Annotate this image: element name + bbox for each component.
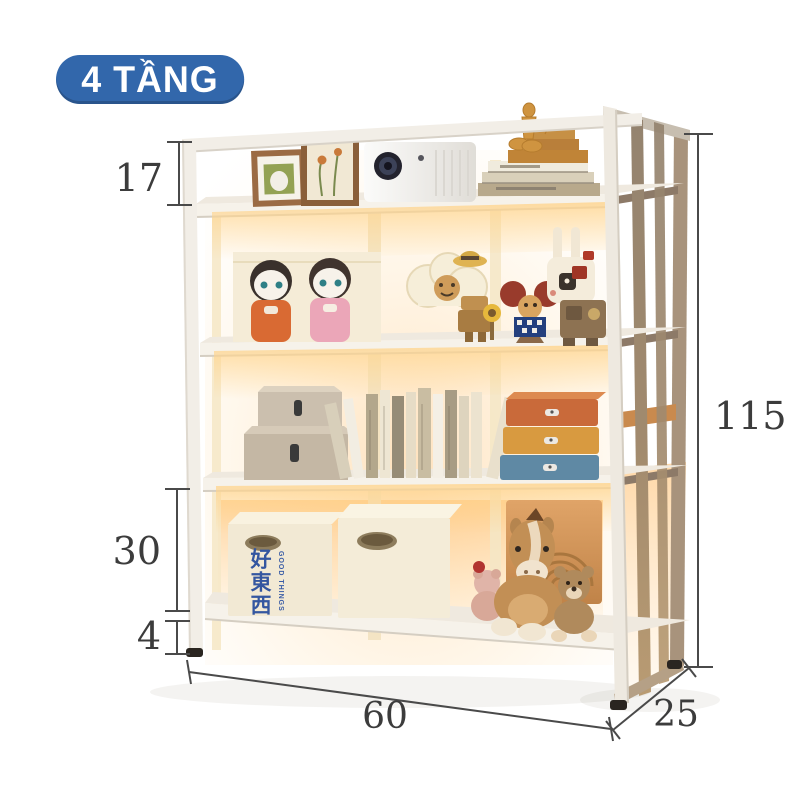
- dim-label-115: 115: [714, 394, 787, 438]
- tier-count-badge: 4 TẦNG: [56, 55, 244, 104]
- picture-frame-small: [251, 149, 307, 207]
- drawer-stack: [500, 392, 606, 480]
- tier3-items: [244, 386, 606, 480]
- dim-label-17: 17: [115, 156, 163, 200]
- dim-label-30: 30: [113, 529, 161, 573]
- dim-bottom-tier: 30: [113, 489, 190, 611]
- product-image: 17 30 4 115 60 25 4 TẦNG 好東西 GOOD THINGS: [0, 0, 800, 800]
- astronaut-doll-pink: [309, 258, 351, 342]
- storage-bin-plain: [338, 504, 462, 618]
- dim-foot-clearance: 4: [137, 614, 190, 658]
- astronaut-doll-orange: [250, 260, 292, 342]
- shelf-illustration: 17 30 4 115 60 25: [0, 0, 800, 800]
- storage-bin-labeled: [228, 512, 344, 616]
- bin-label-english: GOOD THINGS: [277, 551, 284, 612]
- dim-label-60: 60: [362, 696, 408, 737]
- dim-total-height: 115: [684, 134, 787, 667]
- dim-top-tier: 17: [115, 142, 192, 205]
- dim-label-4: 4: [137, 614, 161, 658]
- projector: [364, 142, 476, 202]
- bin-label-chinese: 好東西: [249, 548, 270, 617]
- picture-frame-large: [301, 136, 359, 206]
- book-stack: [478, 161, 600, 196]
- dim-label-25: 25: [653, 694, 699, 735]
